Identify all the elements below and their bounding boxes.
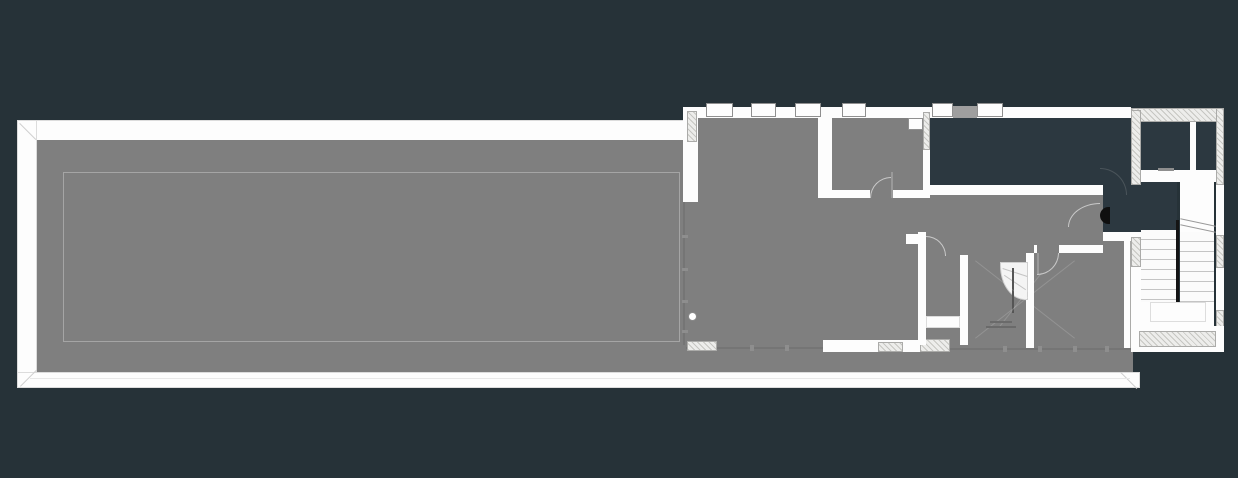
stair-west-wall-hatch: [1131, 237, 1141, 267]
stair-stringer: [1176, 220, 1179, 302]
bedroom-south-wall-right: [891, 190, 923, 198]
structural-column: [688, 312, 697, 321]
bathroom-vanity: [926, 316, 960, 328]
mullion-tick: [1003, 346, 1007, 352]
stair-flight-right: [1180, 232, 1214, 302]
garden-wall-top: [17, 120, 698, 142]
bathroom-west-wall: [918, 232, 926, 345]
tr-room-threshold: [1158, 168, 1174, 171]
tr-east-wall-hatch: [1216, 108, 1224, 185]
stair-landing-outline: [1150, 302, 1206, 322]
window: [977, 103, 1003, 117]
bedroom-door-leaf: [891, 172, 893, 198]
stair-south-wall-hatch: [1139, 331, 1216, 347]
stair-flight-left: [1141, 230, 1177, 302]
mullion-tick: [1105, 346, 1109, 352]
garden-wall-left: [17, 120, 37, 388]
mullion-tick: [785, 345, 789, 351]
bedroom-south-wall-left: [832, 190, 870, 198]
stair-void-pocket: [1141, 182, 1177, 230]
wall-pier: [953, 106, 977, 118]
mullion-tick: [1038, 346, 1042, 352]
bathroom-north-stub: [906, 234, 922, 244]
tr-room-north-wall-hatch: [1131, 108, 1224, 122]
window: [706, 103, 733, 117]
mullion-tick: [682, 235, 688, 238]
tr-east-wall-hatch: [1216, 235, 1224, 268]
mullion-tick: [682, 268, 688, 271]
mullion-tick: [682, 300, 688, 303]
se-room-north-wall-right: [1059, 245, 1103, 253]
window: [932, 103, 953, 117]
window: [842, 103, 866, 117]
lawn-inner-outline: [63, 172, 680, 342]
tr-room-south-wall: [1141, 170, 1216, 182]
floor-plan-canvas: [0, 0, 1238, 478]
bathroom-east-wall: [960, 255, 968, 345]
mullion-tick: [1073, 346, 1077, 352]
courtyard-south-wall: [930, 185, 1103, 195]
stair-annotation-mark: [986, 326, 1016, 328]
garden-wall-bottom: [17, 372, 1140, 388]
left-wall-hatch-pier: [687, 111, 697, 142]
south-window-hatch: [878, 342, 903, 352]
garden-floor-strip-south: [688, 352, 1133, 372]
glass-facade-line-west: [683, 202, 685, 345]
entry-door-leaf-black: [1100, 207, 1110, 224]
stair-annotation-mark: [990, 321, 1012, 323]
bedroom-west-wall: [818, 118, 832, 198]
window: [795, 103, 821, 117]
mullion-tick: [750, 345, 754, 351]
paving-joint-line: [30, 378, 1130, 379]
bedroom-east-window-hatch: [923, 112, 930, 150]
mullion-tick: [682, 330, 688, 333]
window: [751, 103, 776, 117]
se-room-north-wall-left: [1034, 245, 1037, 253]
south-west-sill-hatch: [687, 341, 717, 351]
bedroom-fixture: [908, 118, 923, 130]
tr-room-west-wall-hatch: [1131, 110, 1141, 185]
tr-room-divider-wall: [1190, 122, 1196, 176]
